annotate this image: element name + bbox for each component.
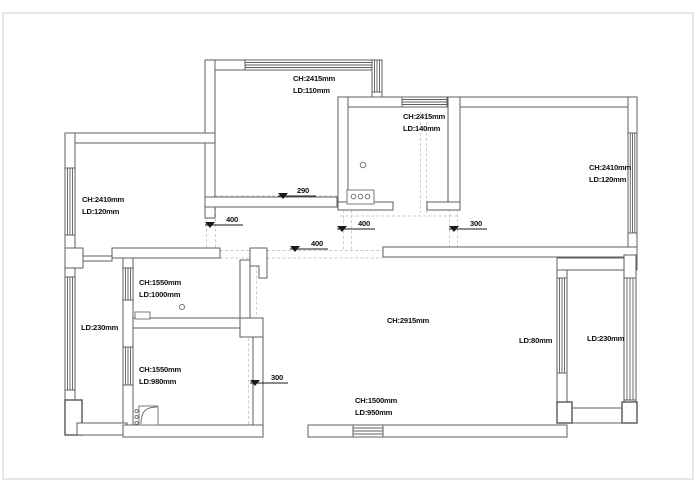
left-room-ld-label: LD:120mm (82, 207, 120, 216)
wall-left-room-north (65, 133, 215, 143)
bath-lower-ld-label: LD:980mm (139, 377, 177, 386)
marker-400-right-label: 400 (358, 219, 370, 228)
balcony-right-ld-label: LD:230mm (587, 334, 625, 343)
window-top-room-north (245, 60, 372, 70)
wall-kitchen-south-right (427, 202, 460, 210)
beam-right-ld-label: LD:80mm (519, 336, 553, 345)
door-threshold-balcony (83, 256, 112, 261)
bath-shelf-symbol (135, 312, 150, 319)
wall-balcony-left-south (77, 423, 127, 435)
kitchen-outlet-symbol (360, 162, 366, 168)
marker-400-left-label: 400 (226, 215, 238, 224)
window-top-room-east (372, 60, 382, 92)
floor-plan-page: 290 400 400 300 400 300 CH:2415 (0, 0, 700, 495)
wall-corridor-south-left (112, 248, 220, 258)
floor-drain-symbol (179, 304, 184, 309)
window-living-south (353, 425, 383, 437)
right-room-ld-label: LD:120mm (589, 175, 627, 184)
wall-living-south-right (383, 425, 567, 437)
window-balcony-left-west (65, 277, 75, 390)
window-balcony-right-west (557, 278, 567, 373)
wall-kitchen-east (448, 97, 460, 210)
pillar-left-room-sw (65, 248, 83, 268)
marker-400-right: 400 (337, 219, 375, 232)
pillar-balcony-right-sw (557, 402, 572, 423)
wall-bath-divider (133, 318, 257, 328)
window-bath-lower-west (123, 347, 133, 385)
window-right-room-east (628, 133, 637, 233)
wall-bath-upper-east (240, 260, 250, 320)
marker-300-right-label: 300 (470, 219, 482, 228)
marker-300-bottom-label: 300 (271, 373, 283, 382)
window-left-room-west (65, 168, 75, 235)
balcony-left-ld-label: LD:230mm (81, 323, 119, 332)
wall-bath-step (240, 318, 263, 337)
window-balcony-right-east (624, 278, 636, 400)
marker-300-right: 300 (449, 219, 487, 232)
pillar-corridor (250, 248, 267, 278)
gas-stove-symbol (347, 190, 374, 204)
pillar-balcony-right-se (622, 402, 637, 423)
entry-bottom-ch-label: CH:1500mm (355, 396, 398, 405)
kitchen-ch-label: CH:2415mm (403, 112, 446, 121)
left-room-ch-label: CH:2410mm (82, 195, 125, 204)
marker-290-label: 290 (297, 186, 309, 195)
wall-north-band (338, 97, 637, 107)
wall-living-north (383, 247, 637, 257)
wall-top-room-south (205, 197, 337, 207)
wall-kitchen-west (338, 97, 348, 210)
floor-plan-canvas: 290 400 400 300 400 300 CH:2415 (0, 0, 700, 495)
right-room-ch-label: CH:2410mm (589, 163, 632, 172)
entry-bottom-ld-label: LD:950mm (355, 408, 393, 417)
room-labels: CH:2415mm LD:110mm CH:2415mm LD:140mm CH… (81, 74, 632, 417)
kitchen-ld-label: LD:140mm (403, 124, 441, 133)
top-room-ld-label: LD:110mm (293, 86, 330, 95)
window-kitchen-north (402, 97, 447, 107)
window-bath-upper-west (123, 268, 133, 300)
bath-upper-ld-label: LD:1000mm (139, 290, 181, 299)
bath-lower-ch-label: CH:1550mm (139, 365, 182, 374)
wall-living-south-left (308, 425, 353, 437)
living-ch-label: CH:2915mm (387, 316, 430, 325)
bath-upper-ch-label: CH:1550mm (139, 278, 182, 287)
washing-machine-symbol (135, 406, 158, 425)
top-room-ch-label: CH:2415mm (293, 74, 336, 83)
wall-bath-lower-south (123, 425, 263, 437)
marker-400-mid-label: 400 (311, 239, 323, 248)
